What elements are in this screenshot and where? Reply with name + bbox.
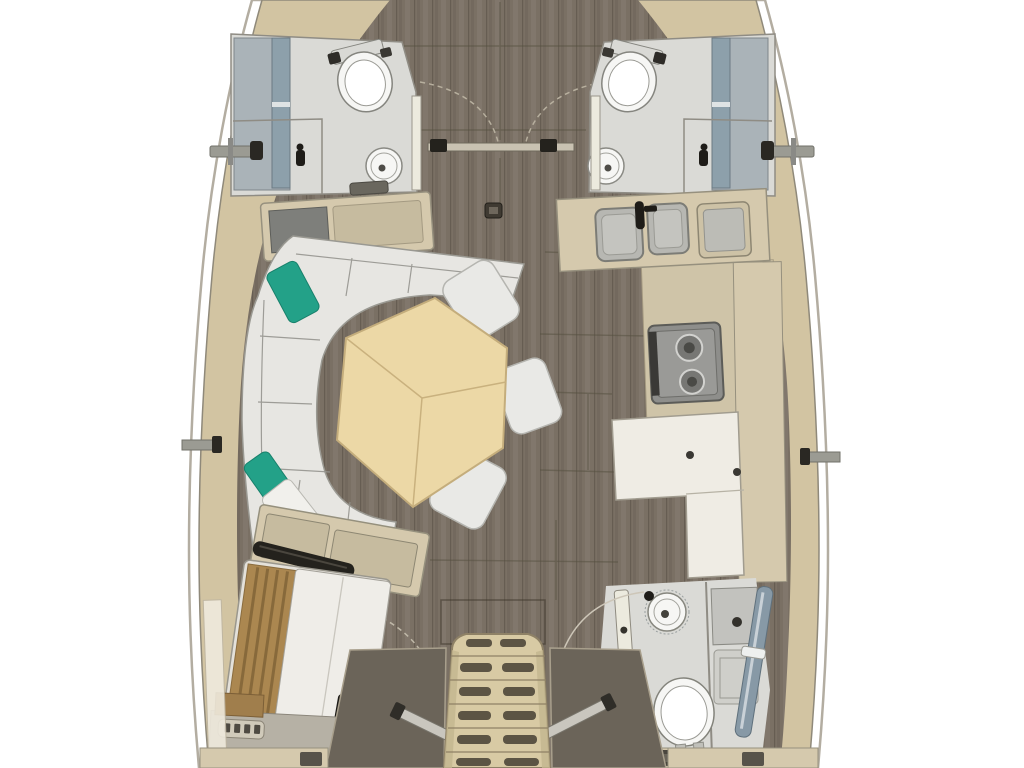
window-mullion	[272, 102, 290, 107]
hull-window	[712, 38, 730, 188]
window-mullion	[712, 102, 730, 107]
head-door-leaf	[412, 96, 421, 190]
sideboard-door	[333, 200, 424, 248]
drain	[379, 165, 386, 172]
forward-port-head	[210, 34, 421, 196]
ladder-body	[444, 634, 550, 768]
shower-drain	[732, 617, 742, 627]
companionway	[326, 634, 666, 768]
ladder	[444, 634, 550, 768]
door-handle-left	[430, 139, 447, 152]
starboard-chainplate	[806, 452, 840, 462]
floor-plan-canvas	[0, 0, 1024, 768]
burner-aft	[679, 369, 704, 394]
sink	[644, 590, 689, 634]
floor-hatch	[485, 203, 502, 218]
door-handle-right	[540, 139, 557, 152]
sink	[366, 148, 402, 184]
sink-counter	[556, 189, 769, 272]
drain	[605, 165, 612, 172]
yacht-floor-plan	[0, 0, 1024, 768]
hull-window	[272, 38, 290, 188]
head-door-leaf	[591, 96, 600, 190]
faucet	[644, 591, 654, 601]
drain	[661, 610, 669, 618]
latch-dot	[733, 468, 741, 476]
stove	[648, 322, 724, 404]
latch-dot	[686, 451, 694, 459]
burner-forward	[676, 334, 703, 361]
sideboard-top-item	[350, 181, 389, 196]
